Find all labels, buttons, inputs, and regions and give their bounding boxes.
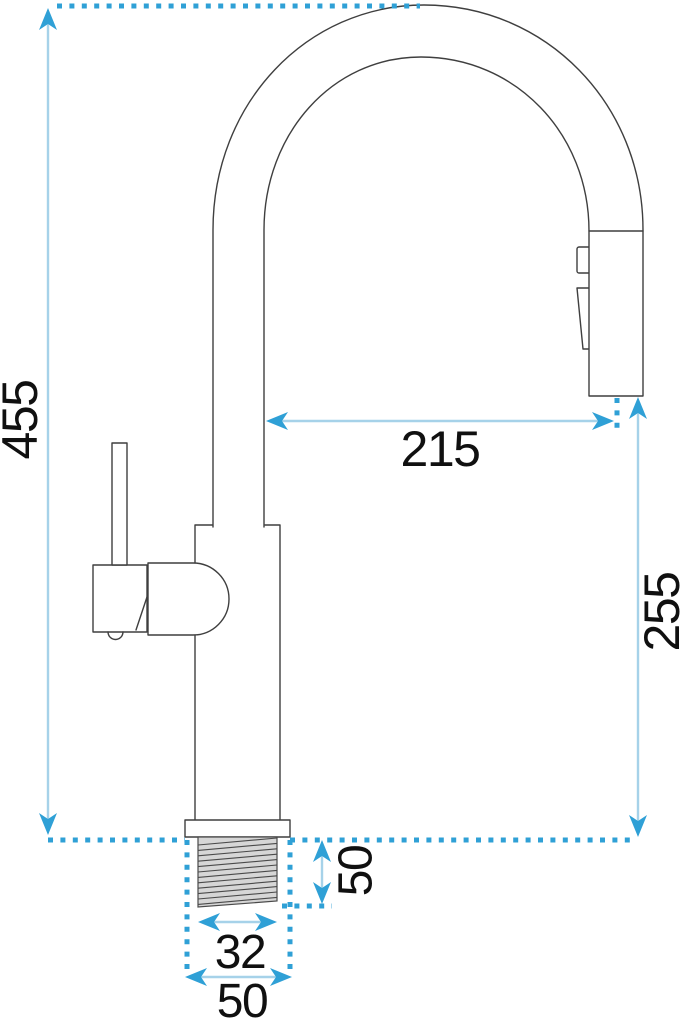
dim-label-shank-length: 50 [330,846,383,896]
dim-shank-length: 50 [313,840,383,904]
dim-outlet-height: 255 [629,397,683,837]
dim-label-base-width: 50 [217,975,267,1020]
diagram-canvas: 455 215 255 50 [0,0,683,1020]
handle-lever [112,443,127,565]
faucet-dimension-diagram: 455 215 255 50 [0,0,683,1020]
dim-total-height: 455 [0,8,57,835]
faucet-drawing [93,5,643,907]
dim-label-outlet-height: 255 [634,573,683,652]
dim-thread-width: 32 [198,913,277,979]
dim-label-thread-width: 32 [215,926,265,979]
dim-label-total-height: 455 [0,381,48,460]
threaded-shank [198,837,277,907]
dim-base-width: 50 [185,968,292,1020]
dim-spout-reach: 215 [266,412,614,477]
dim-label-spout-reach: 215 [401,421,480,477]
handle-pivot-bump [108,632,123,640]
base-flange [185,820,290,837]
reference-lines [48,6,634,974]
